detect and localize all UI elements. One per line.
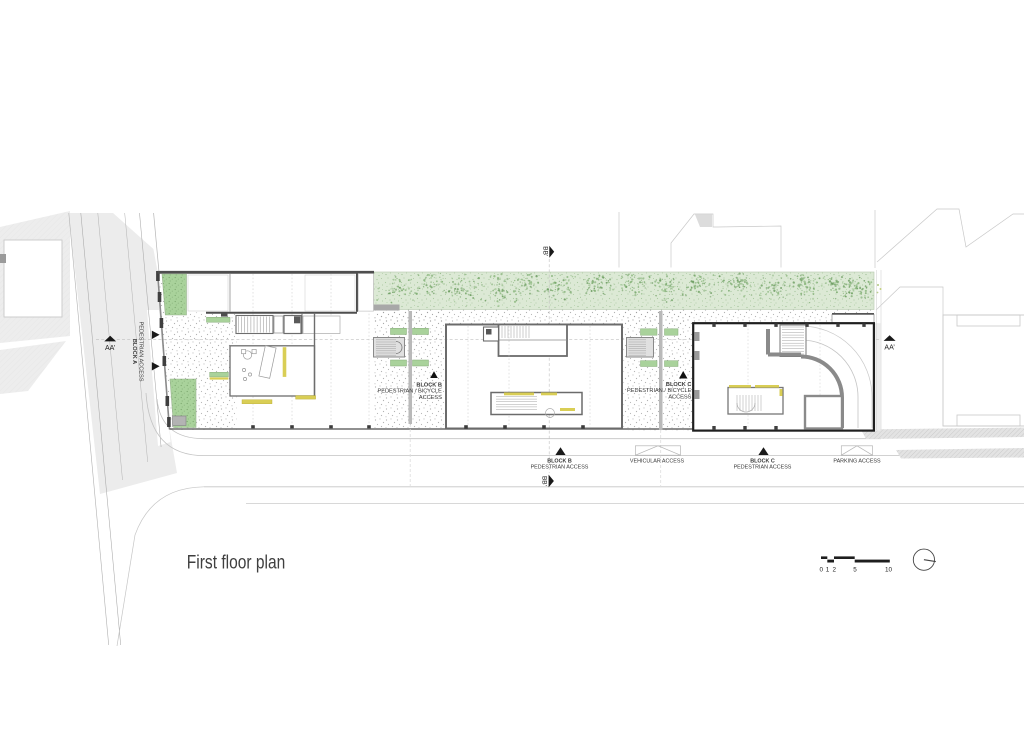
svg-text:PEDESTRIAN ACCESS: PEDESTRIAN ACCESS: [734, 465, 792, 471]
svg-text:BB’: BB’: [542, 246, 549, 257]
svg-text:BLOCK C: BLOCK C: [750, 459, 775, 465]
svg-text:PEDESTRIAN / BICYCLE: PEDESTRIAN / BICYCLE: [378, 389, 443, 395]
svg-text:ACCESS: ACCESS: [668, 394, 691, 400]
svg-text:AA’: AA’: [105, 345, 116, 352]
svg-text:AA’: AA’: [884, 345, 895, 352]
svg-text:PEDESTRIAN / BICYCLE: PEDESTRIAN / BICYCLE: [627, 388, 692, 394]
svg-text:ACCESS: ACCESS: [419, 395, 442, 401]
svg-text:2: 2: [833, 567, 837, 574]
svg-text:10: 10: [885, 567, 893, 574]
svg-text:PARKING ACCESS: PARKING ACCESS: [833, 459, 881, 465]
svg-text:1: 1: [826, 567, 830, 574]
svg-text:BLOCK C: BLOCK C: [666, 382, 691, 388]
svg-text:BLOCK A: BLOCK A: [131, 339, 137, 364]
svg-text:BLOCK B: BLOCK B: [547, 459, 572, 465]
svg-text:PEDESTRIAN ACCESS: PEDESTRIAN ACCESS: [137, 322, 143, 382]
svg-text:BLOCK B: BLOCK B: [416, 382, 441, 388]
svg-text:BB’: BB’: [541, 476, 548, 487]
svg-text:PEDESTRIAN ACCESS: PEDESTRIAN ACCESS: [531, 465, 589, 471]
svg-text:VEHICULAR ACCESS: VEHICULAR ACCESS: [630, 459, 685, 465]
svg-text:0: 0: [820, 567, 824, 574]
svg-text:5: 5: [853, 567, 857, 574]
svg-text:First floor plan: First floor plan: [187, 553, 285, 574]
